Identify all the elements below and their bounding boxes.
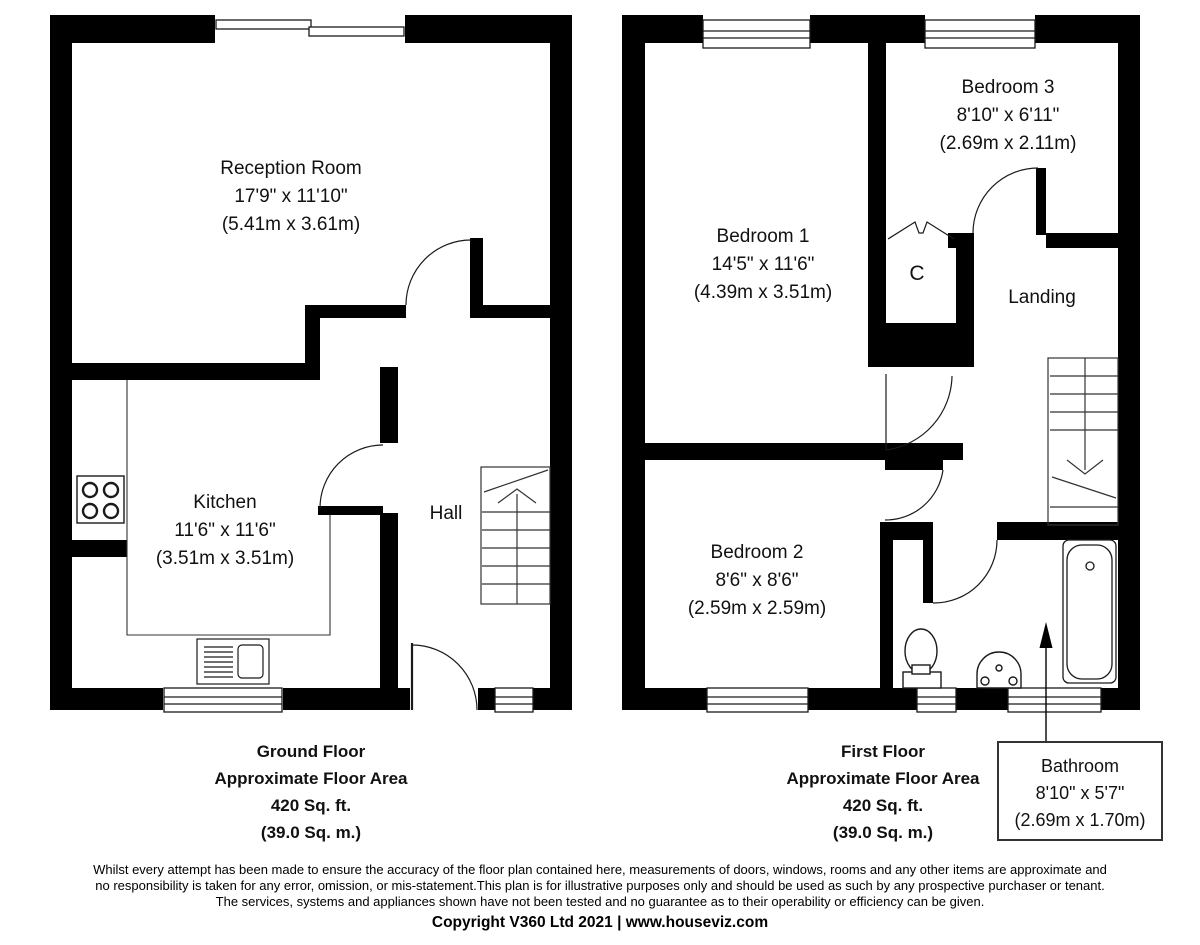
door-arc-kitchen xyxy=(320,445,383,508)
door-arc-front-door xyxy=(412,645,477,710)
copyright-text: Copyright V360 Ltd 2021 | www.houseviz.c… xyxy=(0,914,1200,932)
landing-label: Landing xyxy=(1008,284,1076,312)
room-size-metric: (5.41m x 3.61m) xyxy=(220,211,362,239)
bedroom1-label: Bedroom 1 14'5" x 11'6" (4.39m x 3.51m) xyxy=(694,223,832,307)
bathtub-icon xyxy=(1063,540,1116,683)
disclaimer-line: no responsibility is taken for any error… xyxy=(0,878,1200,894)
bedroom3-label: Bedroom 3 8'10" x 6'11" (2.69m x 2.11m) xyxy=(940,74,1077,158)
room-size-imperial: 14'5" x 11'6" xyxy=(694,251,832,279)
floor-area-sqft: 420 Sq. ft. xyxy=(214,792,407,819)
room-size-metric: (3.51m x 3.51m) xyxy=(156,545,294,573)
window-icon xyxy=(164,688,282,712)
washbasin-icon xyxy=(977,652,1021,688)
disclaimer-line: The services, systems and appliances sho… xyxy=(0,894,1200,910)
window-icon xyxy=(707,688,808,712)
bifold-door-icon xyxy=(888,222,954,239)
staircase-first-icon xyxy=(1048,358,1118,525)
floor-area-caption: Approximate Floor Area xyxy=(214,765,407,792)
bathroom-callout-box: Bathroom 8'10" x 5'7" (2.69m x 1.70m) xyxy=(997,741,1163,841)
first-floor-area-label: First Floor Approximate Floor Area 420 S… xyxy=(786,738,979,846)
floor-title: Ground Floor xyxy=(214,738,407,765)
kitchen-label: Kitchen 11'6" x 11'6" (3.51m x 3.51m) xyxy=(156,489,294,573)
door-arc-bedroom1 xyxy=(886,376,952,450)
room-size-imperial: 8'10" x 6'11" xyxy=(940,102,1077,130)
bedroom2-label: Bedroom 2 8'6" x 8'6" (2.59m x 2.59m) xyxy=(688,539,826,623)
window-icon xyxy=(703,20,810,48)
floor-area-sqm: (39.0 Sq. m.) xyxy=(786,819,979,846)
ground-floor-area-label: Ground Floor Approximate Floor Area 420 … xyxy=(214,738,407,846)
room-size-imperial: 17'9" x 11'10" xyxy=(220,183,362,211)
reception-room-label: Reception Room 17'9" x 11'10" (5.41m x 3… xyxy=(220,155,362,239)
room-name: Hall xyxy=(430,500,463,528)
floor-title: First Floor xyxy=(786,738,979,765)
room-name: Bathroom xyxy=(999,753,1161,780)
disclaimer-text: Whilst every attempt has been made to en… xyxy=(0,862,1200,909)
floor-area-sqm: (39.0 Sq. m.) xyxy=(214,819,407,846)
room-name: C xyxy=(909,262,924,286)
room-name: Landing xyxy=(1008,284,1076,312)
cupboard-label: C xyxy=(909,262,924,286)
stove-icon xyxy=(77,476,124,523)
room-size-metric: (2.59m x 2.59m) xyxy=(688,595,826,623)
room-size-imperial: 8'6" x 8'6" xyxy=(688,567,826,595)
window-icon xyxy=(495,688,533,712)
room-name: Bedroom 1 xyxy=(694,223,832,251)
room-size-metric: (4.39m x 3.51m) xyxy=(694,279,832,307)
floor-area-caption: Approximate Floor Area xyxy=(786,765,979,792)
ground-floor-walls xyxy=(50,15,572,710)
room-size-imperial: 11'6" x 11'6" xyxy=(156,517,294,545)
room-name: Kitchen xyxy=(156,489,294,517)
room-name: Bedroom 3 xyxy=(940,74,1077,102)
room-name: Reception Room xyxy=(220,155,362,183)
floor-area-sqft: 420 Sq. ft. xyxy=(786,792,979,819)
room-size-imperial: 8'10" x 5'7" xyxy=(999,780,1161,807)
bathroom-arrow-icon xyxy=(1040,622,1053,743)
room-size-metric: (2.69m x 2.11m) xyxy=(940,130,1077,158)
door-arc-bathroom xyxy=(933,540,997,603)
floorplan-page: Reception Room 17'9" x 11'10" (5.41m x 3… xyxy=(0,0,1200,945)
window-icon xyxy=(1008,688,1101,712)
door-arc-reception xyxy=(406,240,471,305)
disclaimer-line: Whilst every attempt has been made to en… xyxy=(0,862,1200,878)
door-arc-bedroom3 xyxy=(973,168,1038,233)
room-size-metric: (2.69m x 1.70m) xyxy=(999,807,1161,834)
hall-label: Hall xyxy=(430,500,463,528)
room-name: Bedroom 2 xyxy=(688,539,826,567)
window-icon xyxy=(925,20,1035,48)
window-icon xyxy=(309,27,404,36)
window-icon xyxy=(216,20,311,29)
window-icon xyxy=(917,688,956,712)
staircase-ground-icon xyxy=(481,467,550,604)
sink-icon xyxy=(197,639,269,684)
toilet-icon xyxy=(903,629,941,688)
door-arc-bedroom2 xyxy=(885,470,943,520)
